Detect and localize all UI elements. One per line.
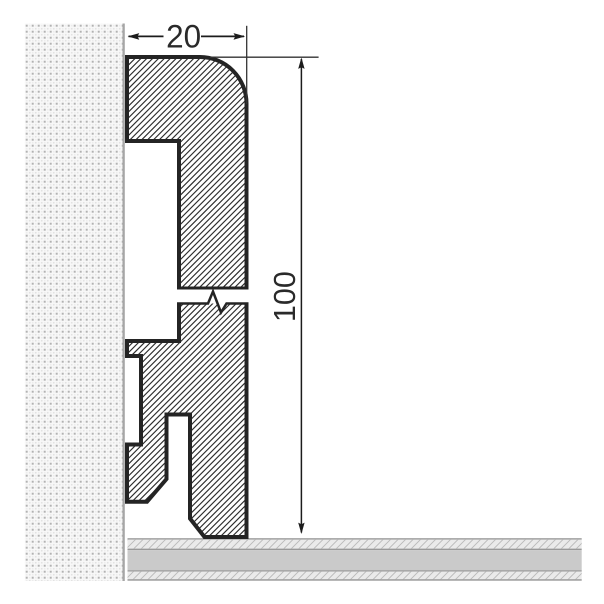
svg-text:100: 100 (268, 271, 302, 322)
svg-text:20: 20 (166, 19, 201, 55)
